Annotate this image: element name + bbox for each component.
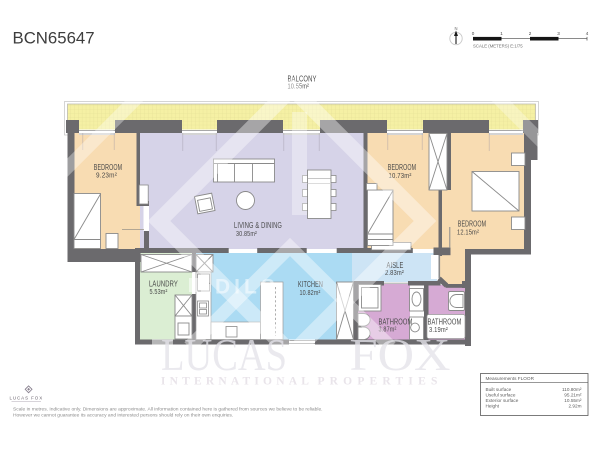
svg-text:FOX: FOX <box>350 329 451 380</box>
svg-text:DILS: DILS <box>215 276 279 299</box>
svg-text:5.53m²: 5.53m² <box>150 287 168 296</box>
svg-text:0: 0 <box>472 31 475 36</box>
svg-text:2.92m: 2.92m <box>568 403 581 408</box>
svg-text:Exterior surface: Exterior surface <box>486 398 519 403</box>
svg-text:PROPERTIES: PROPERTIES <box>317 376 442 388</box>
svg-text:2: 2 <box>529 31 532 36</box>
svg-text:LUCAS: LUCAS <box>161 329 287 380</box>
svg-text:Measurements FLOOR: Measurements FLOOR <box>486 376 535 381</box>
svg-text:Useful surface: Useful surface <box>486 392 516 397</box>
svg-text:12.15m²: 12.15m² <box>457 228 479 237</box>
svg-text:3: 3 <box>557 31 560 36</box>
svg-text:95.21m²: 95.21m² <box>564 392 582 397</box>
svg-text:Scale in metres. Indicative on: Scale in metres. Indicative only. Dimens… <box>13 407 323 413</box>
svg-text:1: 1 <box>500 31 503 36</box>
svg-text:LUCAS FOX: LUCAS FOX <box>9 395 43 400</box>
svg-text:Height: Height <box>486 403 500 408</box>
svg-text:10.55m²: 10.55m² <box>564 398 582 403</box>
svg-text:However we cannot guarantee it: However we cannot guarantee its accuracy… <box>13 413 233 419</box>
svg-text:4: 4 <box>586 31 589 36</box>
svg-text:9.23m²: 9.23m² <box>96 171 117 180</box>
svg-text:BCN65647: BCN65647 <box>13 29 95 48</box>
svg-text:110.80m²: 110.80m² <box>562 387 582 392</box>
svg-text:N: N <box>454 26 457 31</box>
svg-text:Built surface: Built surface <box>486 387 512 392</box>
svg-text:SCALE (METERS) E:1/75: SCALE (METERS) E:1/75 <box>473 44 523 49</box>
svg-text:10.82m²: 10.82m² <box>300 288 321 297</box>
svg-text:30.85m²: 30.85m² <box>236 229 257 238</box>
svg-text:INTERNATIONAL: INTERNATIONAL <box>161 376 313 388</box>
